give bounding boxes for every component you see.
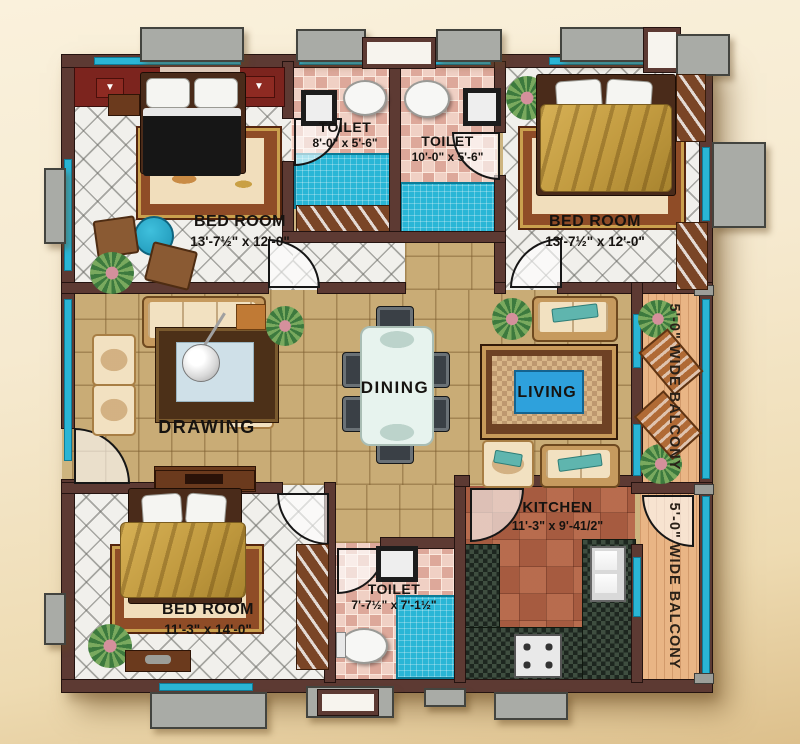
wall-cabinet-inner — [185, 474, 223, 484]
label-bedroom-top-right: BED ROOM 13'-7½" x 12'-0" — [505, 212, 685, 250]
wall-outer-left-lower — [62, 480, 74, 692]
label-toilet-bottom: TOILET 7'-7½" x 7'-1½" — [334, 580, 454, 614]
room-dims: 13'-7½" x 12'-0" — [150, 233, 330, 251]
wash-basin — [463, 88, 501, 126]
sunshade-bottom-1 — [150, 692, 267, 729]
sunshade-bottom-3 — [424, 688, 466, 707]
floor-hall-bottom — [333, 485, 457, 543]
room-name: TOILET — [400, 132, 495, 150]
window-kitchen-balcony — [634, 558, 640, 616]
sunshade-bottom-4 — [494, 692, 568, 720]
room-dims: 8'-0" x 5'-6" — [298, 136, 392, 152]
room-name: BED ROOM — [150, 212, 330, 233]
toilet-sink — [343, 80, 387, 116]
wall-toilet3-kitchen — [455, 483, 465, 682]
room-dims: 13'-7½" x 12'-0" — [505, 233, 685, 251]
wc — [340, 628, 388, 664]
sunshade-left-2 — [44, 593, 66, 645]
label-bedroom-top-left: BED ROOM 13'-7½" x 12'-0" — [150, 212, 330, 250]
room-dims: 11'-3" x 9'-41/2" — [490, 518, 625, 534]
duct-top — [363, 38, 435, 68]
wash-basin — [376, 546, 418, 582]
window-left-2 — [65, 300, 71, 460]
sunshade-left-1 — [44, 168, 66, 244]
balcony-corner-cap-3 — [694, 673, 714, 684]
sunshade-top-1 — [140, 27, 244, 62]
room-dims: 10'-0" x 5'-6" — [400, 150, 495, 166]
railing-balcony-top — [703, 300, 709, 478]
plant — [266, 306, 304, 346]
label-dining: DINING — [350, 378, 440, 398]
blanket-dark — [143, 108, 241, 176]
kitchen-stove — [514, 634, 562, 678]
room-name: BED ROOM — [118, 600, 298, 621]
wall-bedroomTL-bottom-b — [318, 283, 405, 293]
room-name: TOILET — [334, 580, 454, 598]
label-toilet-top-left: TOILET 8'-0" x 5'-6" — [298, 118, 392, 152]
kitchen-sink — [590, 546, 626, 602]
room-dims: 7'-7½" x 7'-1½" — [334, 598, 454, 614]
blanket-gold — [120, 522, 246, 598]
ceiling-fan — [182, 344, 220, 382]
room-dims: 11'-3" x 14'-0" — [118, 621, 298, 639]
wardrobe — [676, 74, 706, 142]
label-living: LIVING — [480, 384, 614, 402]
label-drawing: DRAWING — [147, 417, 267, 438]
armchair — [92, 384, 136, 436]
duct-top-right — [644, 28, 680, 72]
plant — [492, 298, 532, 340]
balcony-corner-cap-2 — [694, 484, 714, 495]
room-name: TOILET — [298, 118, 392, 136]
bench-cushion — [145, 655, 171, 664]
bedside-table — [108, 94, 140, 116]
floor-hall-top — [405, 242, 503, 290]
label-bedroom-bottom-left: BED ROOM 11'-3" x 14'-0" — [118, 600, 298, 638]
armchair — [92, 334, 136, 386]
shower-toilet-top-center — [400, 182, 499, 236]
decor-emblem-icon: ▼ — [243, 76, 275, 98]
blanket-gold — [540, 104, 672, 192]
duct-bottom — [318, 690, 378, 715]
sunshade-right-bay — [712, 142, 766, 228]
sunshade-top-3 — [436, 29, 502, 62]
sunshade-top-right-corner — [676, 34, 730, 76]
pillow — [146, 78, 190, 108]
label-balcony-bottom: 5'-0" WIDE BALCONY — [666, 496, 682, 676]
label-toilet-top-center: TOILET 10'-0" x 5'-6" — [400, 132, 495, 166]
wardrobe — [296, 544, 329, 670]
pillow — [194, 78, 238, 108]
toilet-sink — [404, 80, 450, 118]
label-balcony-top: 5'-0" WIDE BALCONY — [666, 297, 682, 477]
side-table — [236, 304, 266, 330]
window-living-balcony-2 — [634, 425, 640, 475]
wall-stub-hall — [495, 283, 505, 293]
wc-tank — [336, 632, 346, 658]
railing-balcony-bottom — [703, 497, 709, 675]
label-kitchen: KITCHEN 11'-3" x 9'-41/2" — [490, 498, 625, 534]
window-right-bay — [703, 148, 709, 220]
wall-kitchen-top-a — [455, 476, 469, 486]
room-name: KITCHEN — [490, 498, 625, 518]
plant — [90, 252, 134, 294]
room-name: BED ROOM — [505, 212, 685, 233]
window-bottom-1 — [160, 684, 252, 690]
sunshade-top-2 — [296, 29, 366, 62]
floor-plan-canvas: ▼ ▼ BED ROOM 13'-7½" x 12'-0" TOILET 8'-… — [0, 0, 800, 744]
